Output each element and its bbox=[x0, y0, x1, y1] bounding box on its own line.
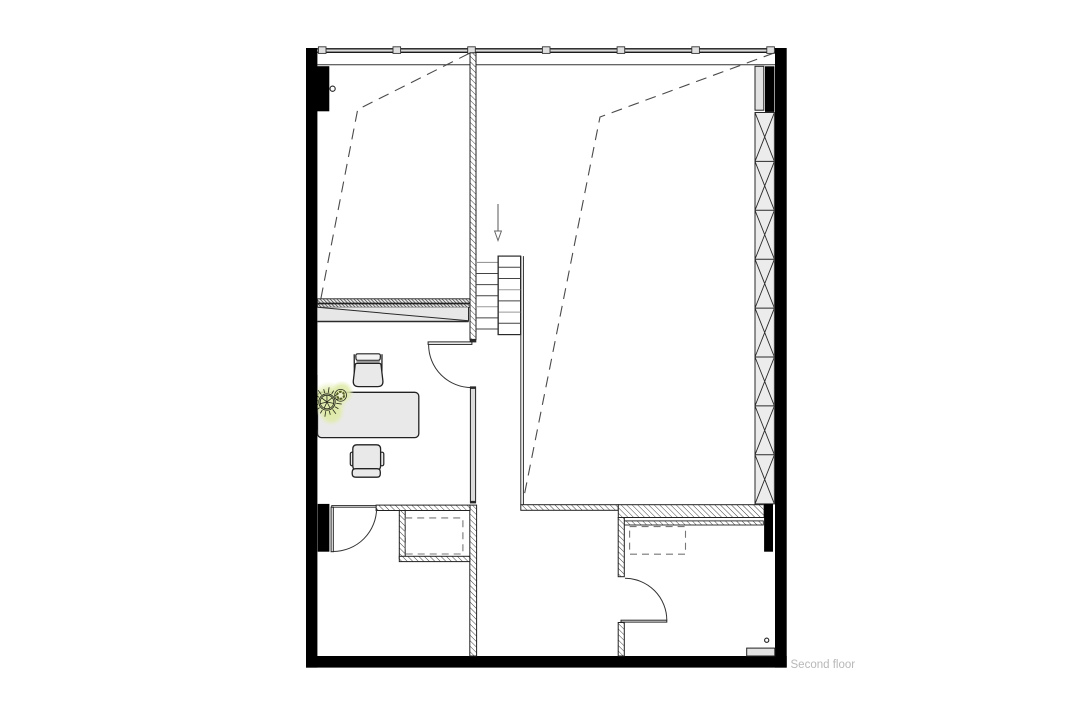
svg-text:Second floor: Second floor bbox=[791, 659, 856, 671]
